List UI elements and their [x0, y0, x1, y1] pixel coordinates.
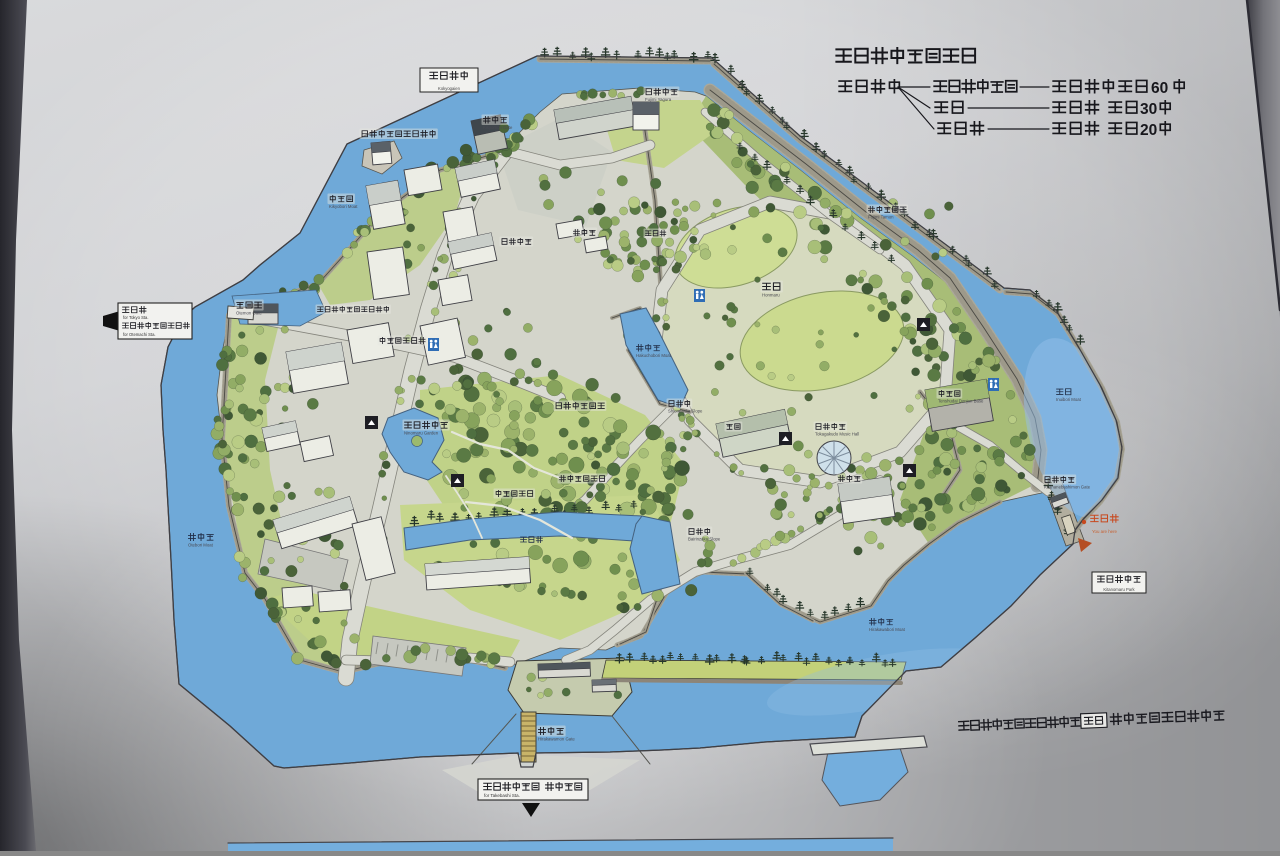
svg-text:20: 20 [1140, 122, 1157, 139]
svg-text:Hirakawamon Gate: Hirakawamon Gate [538, 737, 575, 742]
svg-text:Hakuchobori Moat: Hakuchobori Moat [636, 353, 672, 358]
svg-text:Bairinzaka Slope: Bairinzaka Slope [688, 537, 721, 542]
svg-text:Shiomizaka Slope: Shiomizaka Slope [668, 409, 703, 414]
svg-text:Kitanomaru Park: Kitanomaru Park [1103, 587, 1135, 592]
svg-text:for Takebashi Sta.: for Takebashi Sta. [484, 793, 520, 798]
svg-text:for Otemachi Sta.: for Otemachi Sta. [123, 332, 156, 337]
svg-text:Tenshudai Donjon Base: Tenshudai Donjon Base [938, 399, 984, 404]
svg-text:Kikyobori Moat: Kikyobori Moat [329, 204, 358, 209]
svg-text:Fujimi Tamon: Fujimi Tamon [868, 215, 894, 220]
svg-text:for Tokyo Sta.: for Tokyo Sta. [123, 315, 149, 320]
svg-text:Hirakawabori Moat: Hirakawabori Moat [869, 627, 906, 632]
svg-text:Kitahanebashimon Gate: Kitahanebashimon Gate [1044, 485, 1091, 490]
svg-text:Otemon Gate: Otemon Gate [236, 311, 262, 316]
svg-text:Honmaru: Honmaru [762, 293, 780, 298]
svg-text:Tokagakudo Music Hall: Tokagakudo Music Hall [815, 432, 859, 437]
svg-text:30: 30 [1140, 101, 1157, 118]
svg-text:Ninomaru Garden: Ninomaru Garden [404, 431, 439, 436]
svg-text:You are here: You are here [1092, 529, 1118, 534]
svg-text:60: 60 [1151, 80, 1168, 97]
svg-text:Kikyomon Gate: Kikyomon Gate [483, 125, 513, 130]
svg-text:Fujimi Yagura: Fujimi Yagura [645, 97, 672, 102]
svg-text:Inuibori Moat: Inuibori Moat [1056, 397, 1082, 402]
svg-text:Kokyogaien: Kokyogaien [438, 86, 461, 91]
svg-text:Otebori Moat: Otebori Moat [188, 543, 214, 548]
